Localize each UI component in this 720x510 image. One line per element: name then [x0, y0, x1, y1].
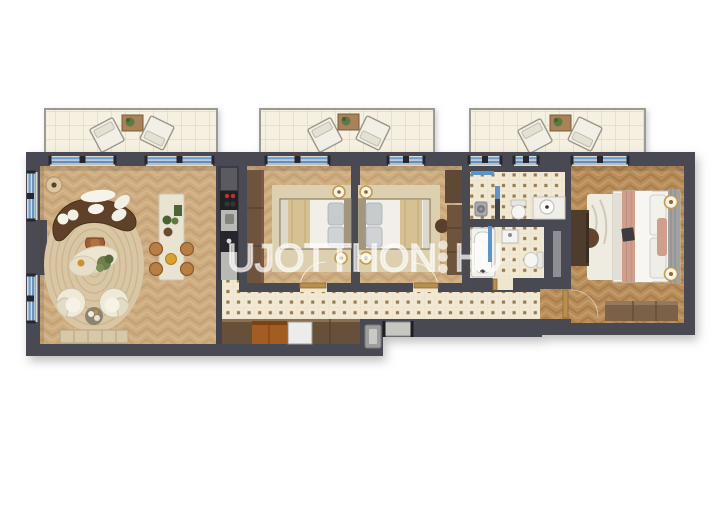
svg-text:UJOTTHON: UJOTTHON — [227, 237, 437, 280]
svg-text:HU: HU — [455, 237, 502, 280]
